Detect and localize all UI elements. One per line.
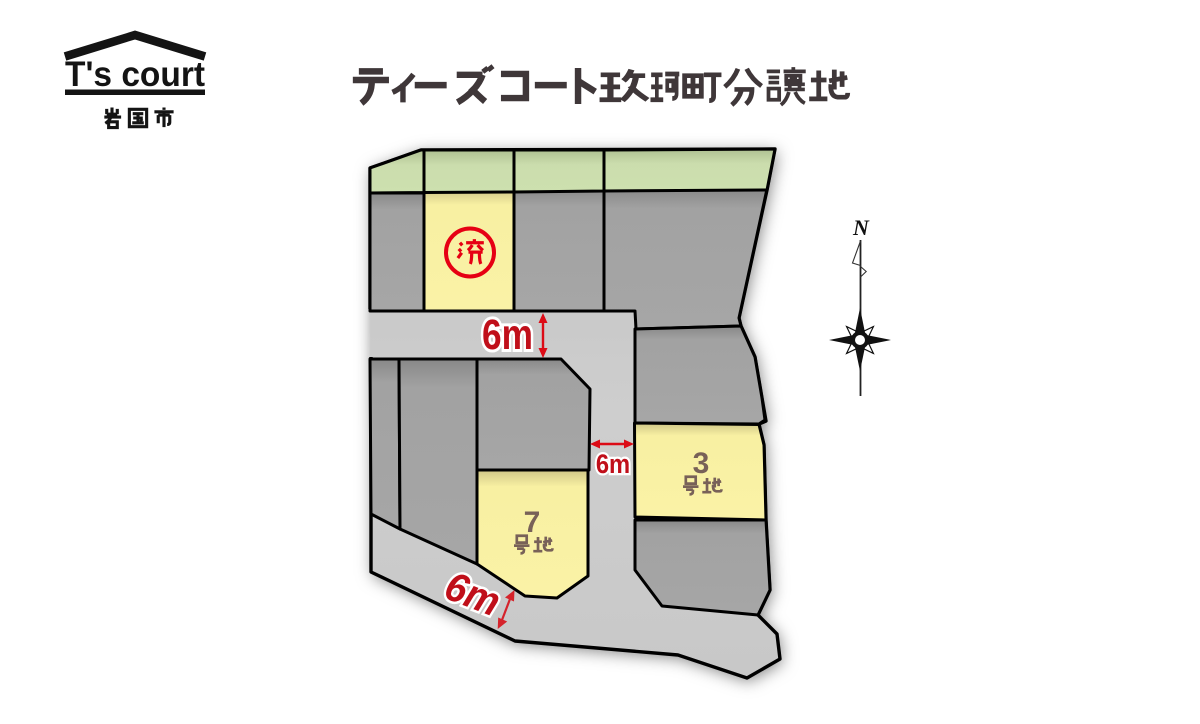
svg-text:6m: 6m [596,450,630,480]
svg-text:3: 3 [693,447,710,480]
svg-text:6m: 6m [482,311,533,359]
svg-text:T's court: T's court [65,55,205,94]
svg-text:N: N [852,215,870,240]
svg-text:7: 7 [524,506,541,539]
